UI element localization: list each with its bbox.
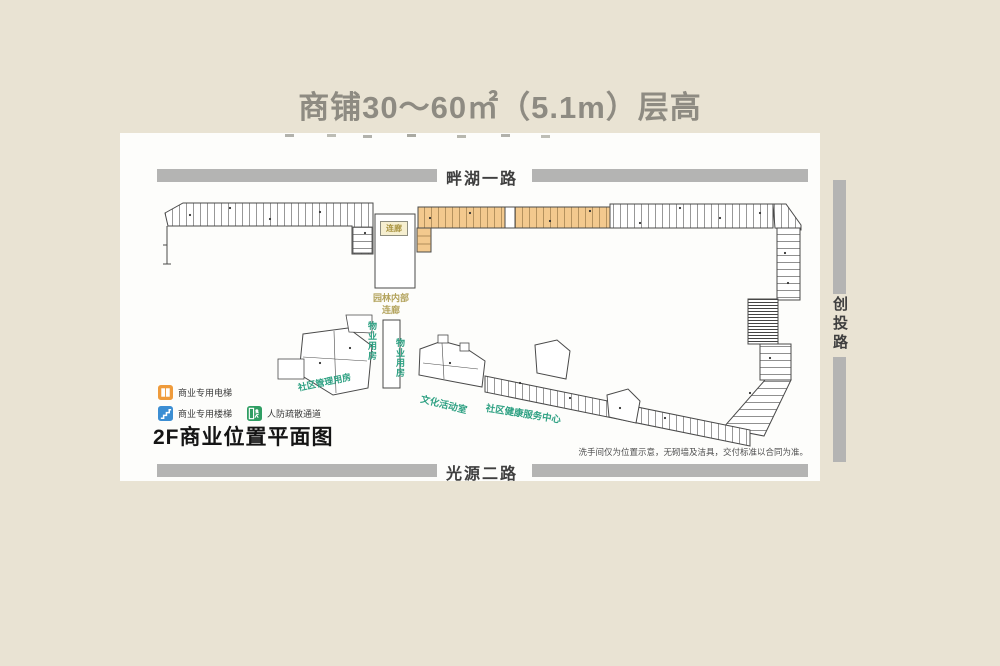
- legend-item-evacuation: 人防疏散通道: [247, 406, 321, 421]
- mid-cluster-2: [607, 389, 640, 423]
- left-wall-strip: [163, 226, 171, 264]
- property-room-label-right: 物业用房: [394, 338, 407, 378]
- property-room-label-left: 物业用房: [366, 321, 379, 361]
- highlighted-shops-right: [515, 207, 610, 228]
- legend-item-stairs: 商业专用楼梯: [158, 406, 232, 421]
- elevator-icon: [158, 385, 173, 400]
- page-title: 商铺30～60㎡（5.1m）层高: [0, 82, 1000, 127]
- shop-gap: [505, 207, 515, 228]
- highlighted-shops-corner: [417, 228, 431, 252]
- road-label-right: 创投路: [829, 296, 850, 353]
- road-bar: [157, 464, 437, 477]
- road-bar: [532, 464, 808, 477]
- road-bar: [833, 357, 846, 462]
- legend-item-elevator: 商业专用电梯: [158, 385, 232, 400]
- garden-corridor-label: 园林内部 连廊: [359, 292, 423, 316]
- highlighted-shops-left: [418, 207, 505, 228]
- corridor-box: 连廊: [380, 221, 408, 236]
- legend-label: 人防疏散通道: [267, 407, 321, 420]
- top-right-wing: [610, 204, 773, 228]
- road-bar: [833, 180, 846, 294]
- legend-label: 商业专用楼梯: [178, 407, 232, 420]
- road-label-bottom: 光源二路: [434, 460, 530, 484]
- floorplan-panel: 畔湖一路: [120, 133, 820, 481]
- stairs-icon: [158, 406, 173, 421]
- culture-cluster: [419, 341, 485, 387]
- disclaimer-note: 洗手间仅为位置示意，无砌墙及洁具，交付标准以合同为准。: [578, 446, 808, 458]
- top-right-corner: [773, 204, 801, 230]
- top-left-wing: [165, 203, 373, 254]
- mid-cluster-1: [535, 340, 570, 379]
- legend-label: 商业专用电梯: [178, 386, 232, 399]
- corridor-box-label: 连廊: [386, 224, 402, 233]
- right-strip-lower: [760, 344, 791, 380]
- right-strip-upper: [777, 228, 800, 300]
- stair-run: [353, 227, 372, 253]
- page: 商铺30～60㎡（5.1m）层高 畔湖一路: [0, 0, 1000, 666]
- plan-heading: 2F商业位置平面图: [153, 421, 334, 451]
- stair-core-block: [748, 299, 778, 344]
- evacuation-icon: [247, 406, 262, 421]
